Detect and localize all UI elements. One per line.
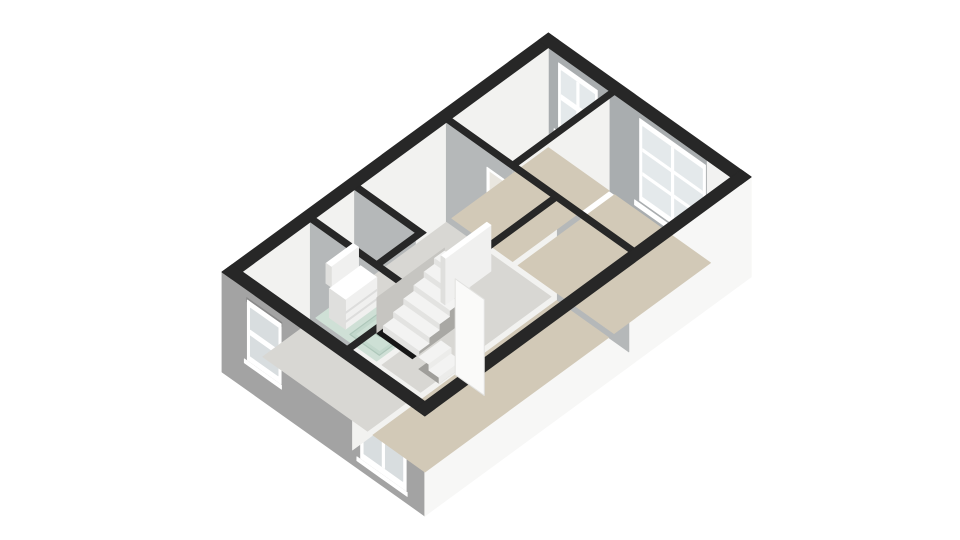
floorplan-3d-stage xyxy=(0,0,960,540)
door-leaf-open xyxy=(455,279,484,396)
vanity-backsplash-side xyxy=(326,263,331,287)
right-room-window-mullion-v xyxy=(671,147,673,219)
stair-parapet-end xyxy=(441,256,445,305)
floorplan-3d-view xyxy=(0,0,960,540)
